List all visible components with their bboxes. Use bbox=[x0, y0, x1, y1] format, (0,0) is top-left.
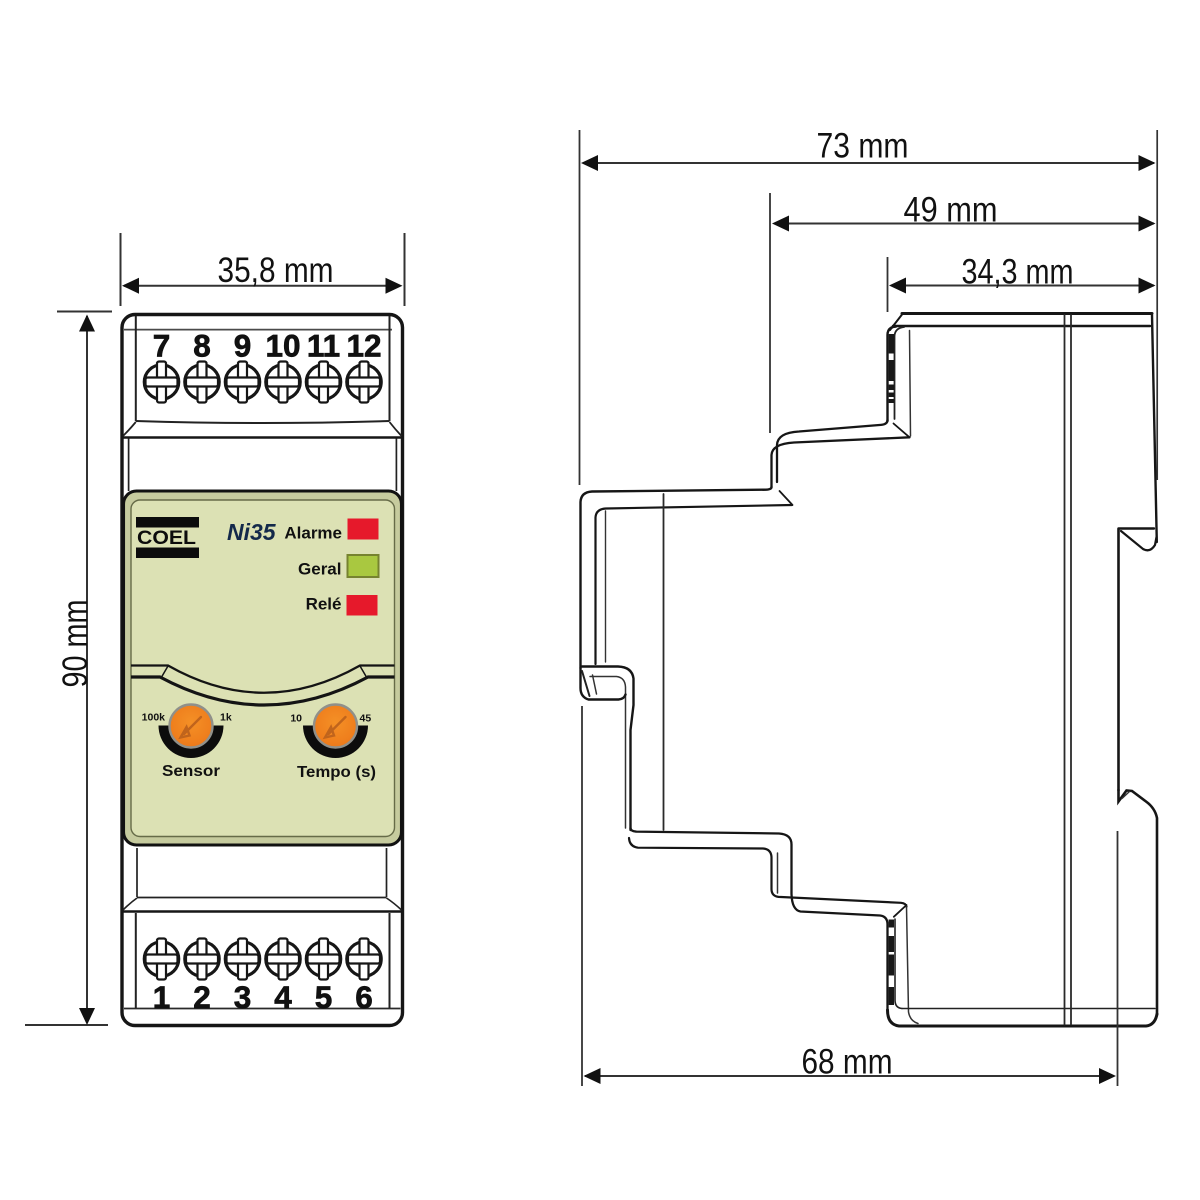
svg-text:3: 3 bbox=[234, 979, 252, 1015]
svg-text:35,8 mm: 35,8 mm bbox=[218, 251, 334, 290]
svg-text:Relé: Relé bbox=[306, 595, 342, 614]
svg-text:100k: 100k bbox=[142, 712, 166, 724]
svg-text:9: 9 bbox=[234, 328, 252, 364]
svg-text:1: 1 bbox=[153, 979, 171, 1015]
svg-text:5: 5 bbox=[315, 979, 333, 1015]
svg-text:34,3 mm: 34,3 mm bbox=[962, 253, 1074, 292]
svg-text:49 mm: 49 mm bbox=[904, 191, 998, 230]
svg-text:2: 2 bbox=[193, 979, 211, 1015]
svg-text:90 mm: 90 mm bbox=[56, 600, 95, 688]
svg-text:Sensor: Sensor bbox=[162, 763, 220, 780]
svg-text:COEL: COEL bbox=[137, 528, 196, 549]
svg-text:6: 6 bbox=[355, 979, 373, 1015]
svg-text:8: 8 bbox=[193, 328, 211, 364]
svg-text:73 mm: 73 mm bbox=[817, 127, 909, 166]
svg-text:1k: 1k bbox=[220, 712, 232, 724]
svg-text:68 mm: 68 mm bbox=[802, 1043, 893, 1082]
svg-text:11: 11 bbox=[307, 328, 340, 364]
svg-text:10: 10 bbox=[290, 713, 302, 725]
svg-text:Geral: Geral bbox=[298, 560, 341, 579]
svg-text:Tempo (s): Tempo (s) bbox=[297, 764, 376, 781]
svg-text:12: 12 bbox=[346, 328, 381, 364]
svg-text:10: 10 bbox=[265, 328, 300, 364]
svg-text:Alarme: Alarme bbox=[284, 524, 342, 543]
svg-text:45: 45 bbox=[360, 713, 372, 725]
svg-text:4: 4 bbox=[274, 979, 292, 1015]
svg-text:7: 7 bbox=[153, 328, 171, 364]
svg-text:Ni35: Ni35 bbox=[227, 519, 277, 545]
